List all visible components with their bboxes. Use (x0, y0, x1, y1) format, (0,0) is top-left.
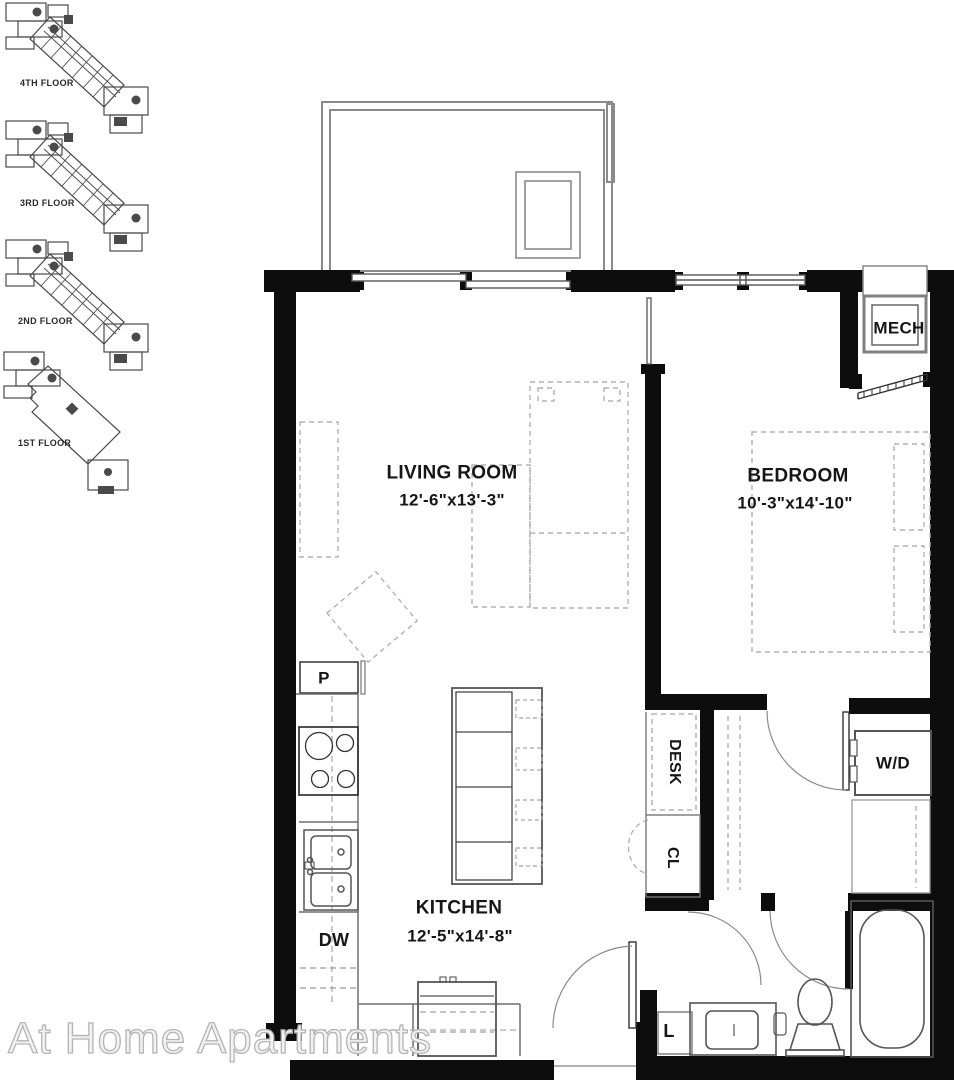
bedroom-closet (852, 800, 930, 893)
mech-louver-door (858, 374, 927, 399)
entry-door (553, 942, 636, 1066)
pantry-label: P (318, 670, 330, 687)
dashed-furniture (300, 382, 930, 662)
bedroom-door (767, 711, 849, 790)
corridor-shelf-dashes (728, 716, 740, 890)
kitchen-counter (296, 694, 520, 1056)
key-plan-2nd-floor (6, 240, 148, 370)
accent-chair-dashed (327, 572, 417, 662)
vanity-sink (690, 1003, 786, 1055)
linen-label: L (663, 1022, 674, 1040)
toilet (786, 979, 844, 1056)
wd-label: W/D (876, 755, 910, 772)
key-plan-4th-floor (6, 3, 148, 133)
bathtub (851, 901, 933, 1057)
kitchen-sink (304, 830, 358, 910)
bathroom-door-arcs (688, 911, 849, 989)
bedroom-label: BEDROOM (747, 467, 848, 486)
kitchen-dims: 12'-5"x14'-8" (407, 928, 513, 945)
mech-label: MECH (873, 320, 924, 337)
cl-label: CL (664, 847, 680, 869)
mech-vent-window (863, 266, 927, 296)
key-plan-3rd-floor (6, 121, 148, 251)
bedroom-opening-panel (647, 298, 651, 364)
balcony-table (516, 172, 580, 258)
living-room-dims: 12'-6"x13'-3" (399, 492, 505, 509)
dishwasher-label: DW (319, 931, 350, 949)
watermark-at-home-apartments: At Home Apartments (8, 1014, 432, 1064)
key-plan-1st-floor (4, 352, 128, 494)
tv-console-dashed (300, 422, 338, 557)
key-plan-label-2nd: 2ND FLOOR (18, 316, 73, 326)
range-stove (299, 727, 358, 795)
island-stools (516, 700, 542, 866)
desk-label: DESK (666, 739, 682, 785)
pantry-cabinet (300, 661, 365, 694)
key-plan-label-4th: 4TH FLOOR (20, 78, 74, 88)
floorplan-page: 4TH FLOOR 3RD FLOOR 2ND FLOOR 1ST FLOOR … (0, 0, 954, 1080)
key-plan-label-1st: 1ST FLOOR (18, 438, 71, 448)
key-plan-label-3rd: 3RD FLOOR (20, 198, 75, 208)
living-room-label: LIVING ROOM (386, 464, 517, 483)
kitchen-label: KITCHEN (416, 899, 503, 918)
bedroom-dims: 10'-3"x14'-10" (737, 495, 852, 512)
